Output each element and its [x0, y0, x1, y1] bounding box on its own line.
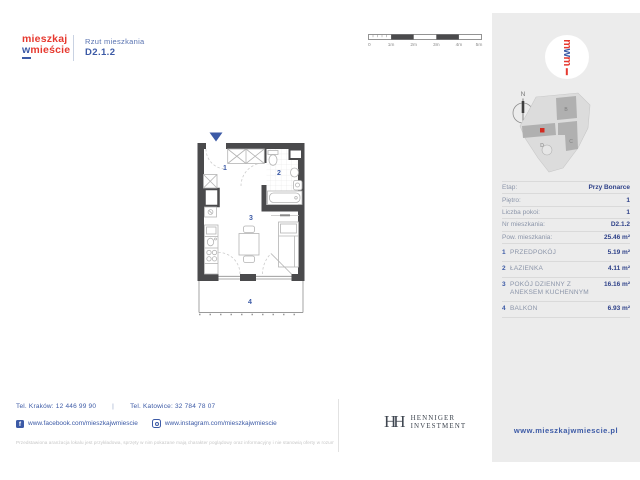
svg-text:3m: 3m	[433, 42, 440, 48]
kitchenette	[205, 225, 219, 274]
room-area-list: 1 PRZEDPOKÓJ 5.19 m² 2 ŁAZIENKA 4.11 m² …	[502, 246, 630, 318]
tel-krakow: Tel. Kraków: 12 446 99 90	[16, 403, 96, 410]
info-value: 1	[626, 209, 630, 216]
svg-text:1m: 1m	[388, 42, 395, 48]
room-name: PRZEDPOKÓJ	[510, 249, 592, 258]
developer-name-line2: INVESTMENT	[411, 422, 467, 430]
svg-text:2m: 2m	[410, 42, 417, 48]
info-value: 25.46 m²	[604, 234, 630, 241]
room-name: POKÓJ DZIENNY Z ANEKSEM KUCHENNYM	[510, 281, 592, 298]
washer-niche	[290, 150, 303, 160]
info-label: Piętro:	[502, 197, 521, 204]
footer-divider	[338, 399, 339, 452]
document-type-label: Rzut mieszkania	[85, 37, 145, 46]
room-row-lazienka: 2 ŁAZIENKA 4.11 m²	[502, 262, 630, 278]
scale-bar: 0 1m 2m 3m 4m 5m	[368, 34, 484, 50]
threshold	[271, 214, 299, 216]
scale-labels: 0 1m 2m 3m 4m 5m	[368, 42, 482, 48]
mwm-logo-badge: mwm	[545, 35, 589, 79]
website-link[interactable]: www.mieszkajwmiescie.pl	[492, 426, 640, 435]
facebook-icon: f	[16, 420, 24, 428]
tel-separator: |	[112, 403, 114, 410]
brand-logo-line2: wmieście	[22, 44, 70, 56]
svg-text:C: C	[569, 139, 573, 145]
room-area: 16.16 m²	[592, 281, 630, 288]
info-value: D2.1.2	[611, 221, 630, 228]
info-row-nr-mieszkania: Nr mieszkania: D2.1.2	[502, 219, 630, 231]
svg-text:D: D	[540, 143, 544, 149]
info-row-etap: Etap: Przy Bonarce	[502, 181, 630, 194]
vent-box	[205, 207, 217, 217]
unit-code: D2.1.2	[85, 47, 115, 58]
siteplan-map: N B D C	[500, 85, 635, 177]
monogram-underline	[566, 68, 568, 75]
info-label: Pow. mieszkania:	[502, 234, 552, 241]
info-row-pow-mieszkania: Pow. mieszkania: 25.46 m²	[502, 232, 630, 244]
room-label-3: 3	[249, 215, 253, 222]
svg-text:N: N	[521, 91, 526, 98]
instagram-link[interactable]: www.instagram.com/mieszkajwmiescie	[165, 420, 277, 427]
room-label-2: 2	[277, 170, 281, 177]
brand-logo-rest: mieście	[30, 44, 70, 56]
apartment-floorplan: 1 2 3 4	[185, 128, 320, 323]
scale-segment-dark-2	[436, 35, 459, 40]
apartment-info-table: Etap: Przy Bonarce Piętro: 1 Liczba poko…	[502, 181, 630, 244]
info-row-liczba-pokoi: Liczba pokoi: 1	[502, 207, 630, 219]
header-divider	[73, 35, 74, 61]
room-row-przedpokoj: 1 PRZEDPOKÓJ 5.19 m²	[502, 246, 630, 262]
tel-katowice: Tel. Katowice: 32 784 78 07	[130, 403, 215, 410]
info-label: Nr mieszkania:	[502, 221, 545, 228]
henniger-monogram-icon: HH	[384, 413, 403, 430]
svg-text:4m: 4m	[456, 42, 463, 48]
monogram-m2: m	[562, 57, 572, 66]
entrance-arrow-icon	[210, 133, 223, 142]
phone-numbers: Tel. Kraków: 12 446 99 90 | Tel. Katowic…	[16, 403, 215, 410]
dining-table	[239, 226, 259, 263]
room-label-4: 4	[248, 299, 252, 306]
developer-name-line1: HENNIGER	[411, 414, 467, 422]
room-area: 6.93 m²	[592, 305, 630, 312]
room-row-balkon: 4 BALKON 6.93 m²	[502, 302, 630, 318]
monogram-w: w	[562, 48, 572, 56]
room-number: 3	[502, 281, 510, 288]
developer-logo: HH HENNIGER INVESTMENT	[384, 413, 466, 430]
scale-segment-dark-1	[391, 35, 414, 40]
developer-name: HENNIGER INVESTMENT	[411, 414, 467, 430]
facebook-link[interactable]: www.facebook.com/mieszkajwmiescie	[28, 420, 138, 427]
social-links: f www.facebook.com/mieszkajwmiescie www.…	[16, 419, 277, 428]
legal-disclaimer: Przedstawiona aranżacja lokalu jest przy…	[16, 440, 334, 445]
room-name: ŁAZIENKA	[510, 265, 592, 274]
info-label: Liczba pokoi:	[502, 209, 540, 216]
bed	[279, 222, 299, 267]
room-number: 4	[502, 305, 510, 312]
room-number: 2	[502, 265, 510, 272]
room-name: BALKON	[510, 305, 592, 314]
room-row-pokoj-dzienny: 3 POKÓJ DZIENNY Z ANEKSEM KUCHENNYM 16.1…	[502, 278, 630, 302]
room-area: 5.19 m²	[592, 249, 630, 256]
balcony-outline	[199, 281, 303, 315]
wardrobes	[204, 149, 265, 188]
brand-underline	[22, 57, 31, 59]
info-label: Etap:	[502, 184, 517, 191]
technical-shaft	[205, 189, 219, 206]
room-label-1: 1	[223, 165, 227, 172]
info-value: 1	[626, 197, 630, 204]
svg-text:0: 0	[368, 42, 371, 48]
apartment-location-marker	[540, 128, 545, 133]
monogram-m1: m	[562, 39, 572, 48]
sidebar-panel: mwm N B D C	[492, 13, 640, 462]
instagram-icon	[152, 419, 161, 428]
info-row-pietro: Piętro: 1	[502, 194, 630, 206]
info-value: Przy Bonarce	[588, 184, 630, 191]
mwm-monogram: mwm	[562, 39, 572, 75]
room-number: 1	[502, 249, 510, 256]
svg-text:5m: 5m	[476, 42, 483, 48]
floorplan-brochure-page: mieszkaj wmieście Rzut mieszkania D2.1.2…	[0, 0, 640, 480]
room-area: 4.11 m²	[592, 265, 630, 272]
